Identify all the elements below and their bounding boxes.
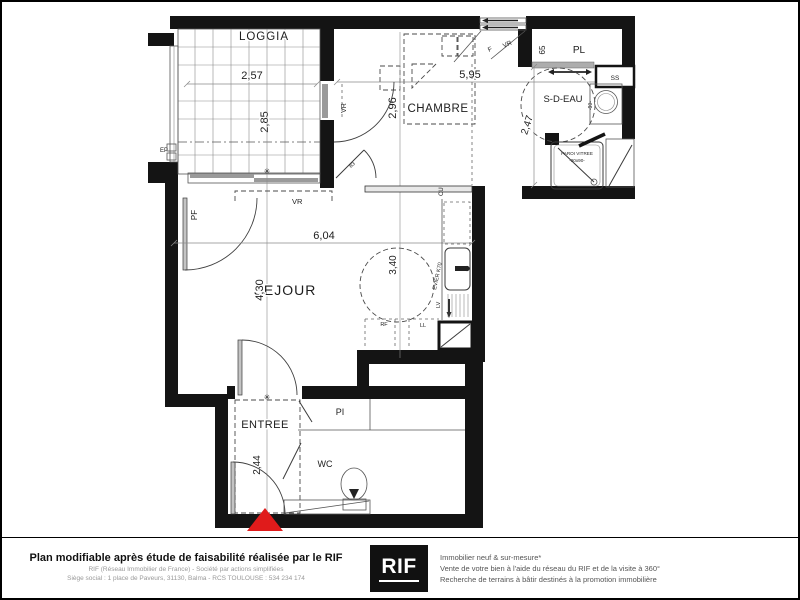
vr-window-label: VR: [502, 40, 513, 50]
wc-label: WC: [318, 459, 333, 469]
kitchen: CU EVIER K70 LV RF LL: [365, 187, 472, 349]
rf-label: RF: [380, 322, 388, 328]
washbasin: -90-: [588, 84, 622, 124]
floor-plan-canvas: LOGGIA 2,57 2,85 EP ✳ ✳ VR PF CHAMBRE: [2, 2, 798, 539]
vr-loggia-label: VR: [292, 197, 303, 206]
sejour-width-dim: 6,04: [313, 230, 334, 242]
rif-logo: RIF: [370, 545, 428, 592]
footer-disclaimer: Plan modifiable après étude de faisabili…: [2, 552, 370, 583]
ss-label: SS: [611, 75, 620, 82]
service-line-3: Recherche de terrains à bâtir destinés à…: [440, 574, 660, 585]
f-window-label: F: [487, 46, 494, 54]
pl-label: PL: [573, 45, 586, 56]
loggia-width-dim: 2,57: [241, 70, 262, 82]
placard-room: PL 65 SS: [532, 45, 634, 87]
sejour-circle-dim: 3,40: [388, 255, 399, 275]
wc-sliding-door: [284, 500, 370, 514]
lv-label: LV: [436, 301, 442, 308]
vr-chambre-label: VR: [341, 103, 348, 113]
service-line-1: Immobilier neuf & sur-mesure*: [440, 552, 660, 563]
chambre-width-dim: 5,95: [459, 69, 480, 81]
entree-height-dim: 2,44: [252, 455, 263, 475]
sliding-bay-door: [188, 173, 320, 183]
shower: PAROI VITREE -90x90-: [551, 134, 605, 189]
pi-door: [299, 401, 312, 422]
entree-room: ENTREE 2,44: [231, 340, 300, 531]
pf-label: PF: [190, 210, 199, 220]
chambre-label: CHAMBRE: [407, 103, 468, 115]
kitchen-sink: EVIER K70: [432, 248, 470, 290]
ll-label: LL: [420, 323, 426, 329]
entree-label: ENTREE: [241, 419, 289, 431]
technical-shaft: [439, 322, 472, 349]
appliances: RF LL: [365, 319, 439, 349]
axis-star-bottom: ✳: [264, 393, 271, 402]
sejour-room: SEJOUR 6,04 4,30 3,40: [171, 230, 475, 322]
pi-room: PI: [298, 399, 465, 430]
disclaimer-title: Plan modifiable après étude de faisabili…: [2, 552, 370, 566]
service-line-2: Vente de votre bien à l'aide du réseau d…: [440, 563, 660, 574]
loggia-room: LOGGIA 2,57 2,85 EP: [160, 29, 320, 183]
axis-star-top: ✳: [264, 167, 271, 176]
vr-loggia-outline: [235, 191, 332, 201]
chambre-height-dim: 2,96: [387, 97, 399, 118]
loggia-height-dim: 2,85: [259, 111, 271, 132]
disclaimer-line-2: Siège social : 1 place de Paveurs, 31130…: [2, 575, 370, 584]
disclaimer-line-1: RIF (Réseau Immobilier de France) - Soci…: [2, 566, 370, 575]
drainer: [448, 294, 468, 317]
floor-plan-page: LOGGIA 2,57 2,85 EP ✳ ✳ VR PF CHAMBRE: [0, 0, 800, 600]
rif-logo-text: RIF: [379, 555, 418, 582]
pl-depth-dim: 65: [538, 45, 547, 54]
wc-room: WC: [283, 443, 370, 514]
sdeau-label: S-D-EAU: [543, 94, 582, 105]
pi-label: PI: [336, 407, 345, 417]
b3-door: B3: [336, 150, 376, 178]
partition-wall: [365, 186, 472, 192]
basin-diameter-label: -90-: [588, 101, 594, 110]
loggia-tile-grid: [178, 29, 320, 174]
footer-services: Immobilier neuf & sur-mesure* Vente de v…: [428, 552, 660, 585]
b3-label: B3: [348, 161, 357, 170]
loggia-label: LOGGIA: [239, 31, 289, 43]
toilet: [341, 468, 367, 510]
footer: Plan modifiable après étude de faisabili…: [2, 537, 798, 598]
sdeau-door: [609, 145, 632, 186]
sejour-height-dim: 4,30: [254, 279, 266, 300]
wc-door: [283, 443, 301, 479]
cu-label: CU: [439, 187, 445, 196]
pf-door: PF: [183, 198, 257, 270]
